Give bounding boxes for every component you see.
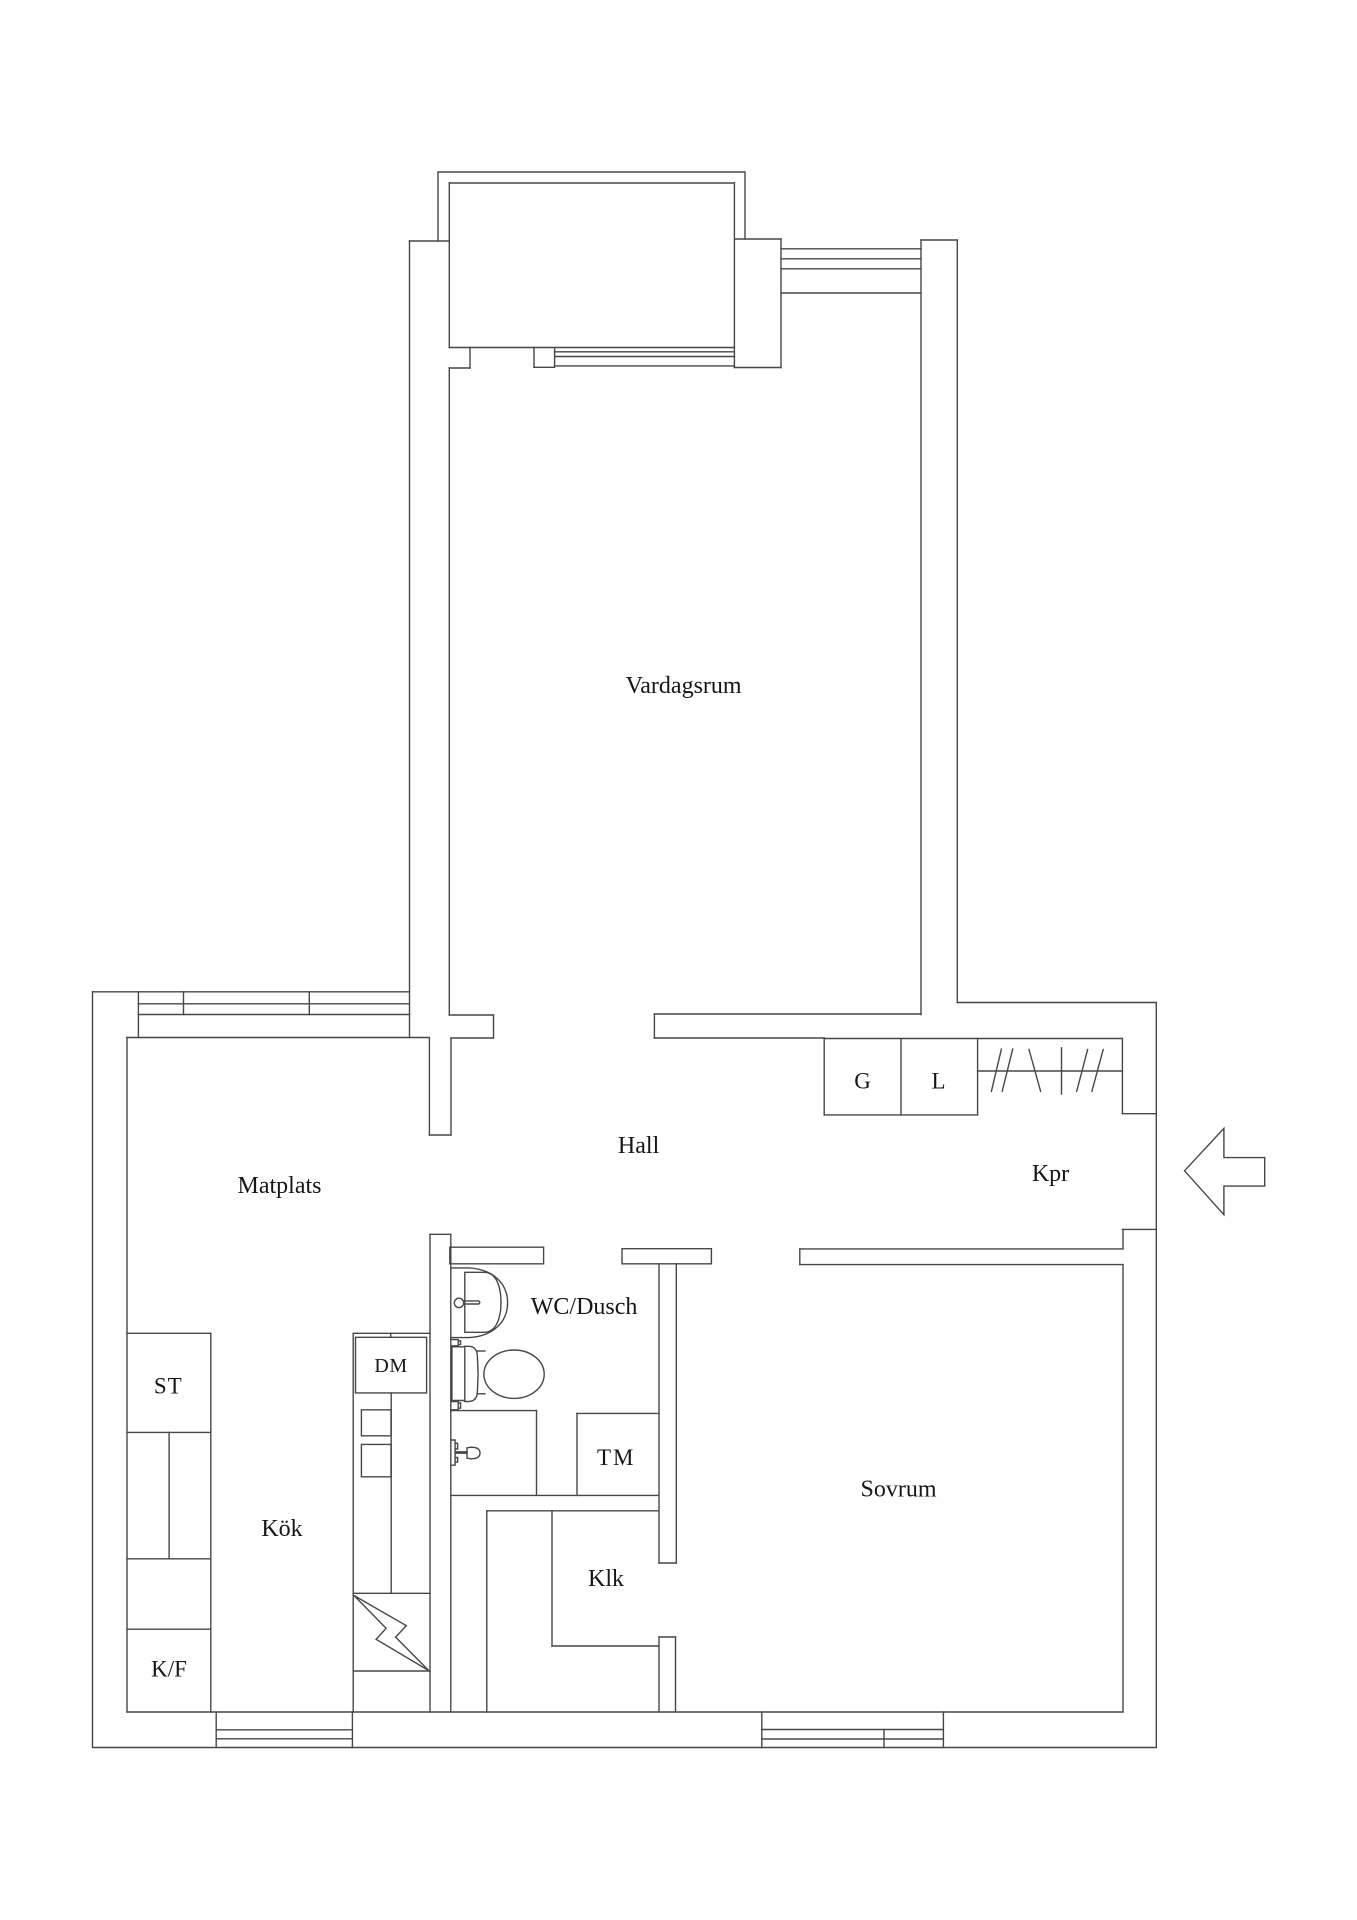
svg-text:K/F: K/F	[151, 1657, 187, 1682]
svg-text:L: L	[931, 1068, 945, 1093]
svg-text:Matplats: Matplats	[238, 1173, 322, 1199]
svg-text:Sovrum: Sovrum	[860, 1476, 936, 1502]
svg-text:DM: DM	[374, 1355, 407, 1377]
svg-text:TM: TM	[597, 1445, 636, 1470]
svg-text:ST: ST	[154, 1374, 183, 1399]
svg-text:Vardagsrum: Vardagsrum	[626, 673, 742, 699]
svg-text:WC/Dusch: WC/Dusch	[531, 1294, 638, 1320]
svg-text:G: G	[854, 1068, 871, 1093]
svg-text:Hall: Hall	[618, 1133, 660, 1159]
svg-text:Kpr: Kpr	[1032, 1161, 1069, 1187]
svg-text:Kök: Kök	[261, 1516, 302, 1542]
svg-text:Klk: Klk	[588, 1566, 624, 1592]
